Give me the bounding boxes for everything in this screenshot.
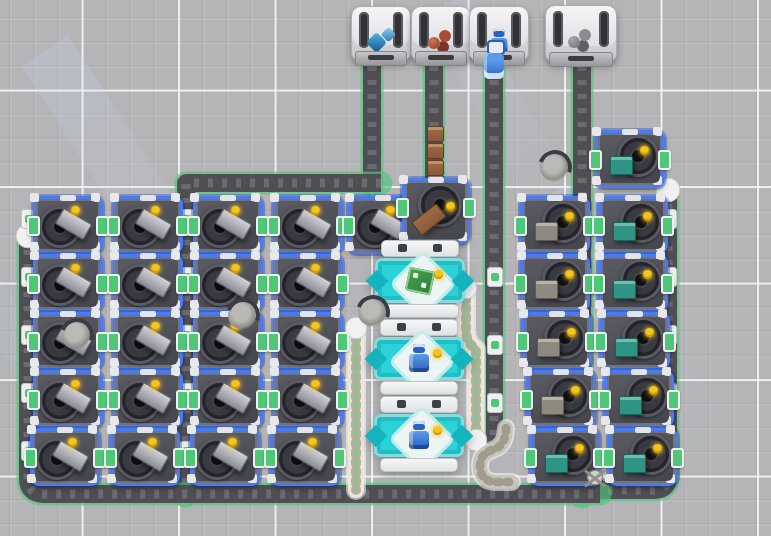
output-port-right (336, 274, 349, 294)
status-light (71, 380, 80, 389)
status-light (311, 322, 320, 331)
output-port-right (661, 274, 674, 294)
status-light (565, 212, 574, 221)
circuit-item-icon (405, 266, 435, 295)
resource-cube (545, 454, 568, 473)
output-port-left (342, 216, 355, 236)
output-port-left (516, 332, 529, 352)
output-port-right (336, 390, 349, 410)
extractor-teal[interactable] (598, 196, 668, 254)
input-slot (397, 323, 406, 331)
belt-item-wood[interactable] (427, 126, 444, 142)
output-port-left (264, 448, 277, 468)
output-port-left (267, 332, 280, 352)
robot-head (413, 421, 425, 430)
output-port-left (107, 216, 120, 236)
delivery-robot[interactable] (482, 40, 506, 82)
extractor-stone[interactable] (520, 254, 590, 312)
output-port-left (27, 216, 40, 236)
extractor-wood[interactable] (402, 178, 470, 244)
stone-item-icon (567, 28, 595, 50)
hopper-slot (599, 11, 609, 47)
assembler-chamber (374, 337, 464, 380)
status-light (571, 386, 580, 395)
hopper-slot (553, 11, 563, 47)
belt-item-wood[interactable] (427, 143, 444, 159)
delivery-hopper-crystal[interactable] (351, 6, 411, 62)
robot-head (413, 344, 425, 353)
assembler-robot[interactable] (374, 319, 464, 395)
status-light (231, 264, 240, 273)
port-indicator (491, 399, 499, 407)
input-slot (398, 244, 407, 252)
status-light (643, 212, 652, 221)
extractor-iron[interactable] (270, 428, 340, 486)
robot-wreck[interactable] (540, 152, 570, 182)
assembler-output-cap (381, 304, 459, 318)
extractor-teal[interactable] (598, 254, 668, 312)
extractor-teal[interactable] (595, 130, 665, 188)
output-port-left (107, 390, 120, 410)
output-port-left (589, 150, 602, 170)
assembler-chamber (375, 258, 465, 303)
junction-port[interactable] (487, 267, 503, 287)
status-light (151, 380, 160, 389)
delivery-hopper-copper[interactable] (411, 6, 471, 62)
output-port-left (187, 390, 200, 410)
resource-cube (613, 280, 636, 299)
resource-cube (610, 156, 633, 175)
output-port-left (524, 448, 537, 468)
status-light (148, 438, 157, 447)
status-light (311, 380, 320, 389)
status-light (653, 444, 662, 453)
extractor-stone[interactable] (522, 312, 592, 370)
status-light (433, 349, 442, 358)
hopper-slot (393, 12, 403, 48)
input-slot (433, 244, 442, 252)
extractor-iron[interactable] (113, 196, 183, 254)
extractor-iron[interactable] (113, 370, 183, 428)
status-light (308, 438, 317, 447)
output-port-left (27, 274, 40, 294)
output-port-left (27, 390, 40, 410)
extractor-iron[interactable] (113, 254, 183, 312)
hopper-base (415, 51, 467, 66)
output-port-left (514, 274, 527, 294)
assembler-robot[interactable] (374, 396, 464, 472)
status-light (311, 206, 320, 215)
output-port-left (267, 390, 280, 410)
extractor-iron[interactable] (273, 370, 343, 428)
output-port-right (463, 198, 476, 218)
output-port-left (184, 448, 197, 468)
status-light (231, 380, 240, 389)
output-port-left (267, 274, 280, 294)
extractor-iron[interactable] (33, 254, 103, 312)
output-port-left (107, 274, 120, 294)
delivery-hopper-stone[interactable] (545, 5, 617, 63)
status-light (575, 444, 584, 453)
output-port-right (671, 448, 684, 468)
robot-torso (409, 431, 429, 449)
extractor-iron[interactable] (190, 428, 260, 486)
input-slot (432, 400, 441, 408)
output-port-left (107, 332, 120, 352)
output-port-left (104, 448, 117, 468)
robot-torso (409, 354, 429, 372)
resource-cube (537, 338, 560, 357)
output-port-left (592, 216, 605, 236)
output-port-left (27, 332, 40, 352)
output-port-left (520, 390, 533, 410)
output-port-left (187, 332, 200, 352)
status-light (565, 270, 574, 279)
output-port-left (24, 448, 37, 468)
status-light (231, 206, 240, 215)
robot-item-icon (408, 421, 430, 451)
status-light (71, 264, 80, 273)
hopper-slot (511, 12, 521, 48)
hopper-base (355, 51, 407, 66)
output-port-left (592, 274, 605, 294)
output-port-left (396, 198, 409, 218)
junction-port[interactable] (487, 335, 503, 355)
status-light (640, 146, 649, 155)
status-light (433, 426, 442, 435)
extractor-iron[interactable] (110, 428, 180, 486)
status-light (567, 328, 576, 337)
extractor-iron[interactable] (273, 312, 343, 370)
status-light (151, 206, 160, 215)
status-light (71, 206, 80, 215)
extractor-iron[interactable] (113, 312, 183, 370)
robot-wreck[interactable] (62, 320, 92, 350)
copper-item-icon (427, 29, 455, 51)
factory-viewport (0, 0, 771, 536)
output-port-right (658, 150, 671, 170)
resource-cube (541, 396, 564, 415)
status-light (228, 438, 237, 447)
extractor-iron[interactable] (193, 196, 263, 254)
status-light (311, 264, 320, 273)
extractor-iron[interactable] (33, 370, 103, 428)
status-light (68, 438, 77, 447)
junction-port[interactable] (487, 393, 503, 413)
resource-cube (535, 222, 558, 241)
port-indicator (491, 273, 499, 281)
resource-cube (623, 454, 646, 473)
resource-cube (535, 280, 558, 299)
spider-robot[interactable] (578, 462, 612, 496)
extractor-teal[interactable] (608, 428, 678, 486)
status-light (151, 322, 160, 331)
extractor-iron[interactable] (273, 254, 343, 312)
status-light (434, 270, 443, 279)
hopper-base (549, 52, 613, 67)
status-light (386, 206, 395, 215)
robot-head (494, 29, 505, 37)
port-indicator (491, 341, 499, 349)
robot-item-icon (408, 344, 430, 374)
output-port-right (333, 448, 346, 468)
extractor-iron[interactable] (273, 196, 343, 254)
output-port-left (187, 216, 200, 236)
assembler-output-cap (380, 381, 458, 395)
resource-cube (615, 338, 638, 357)
output-port-right (661, 216, 674, 236)
output-port-right (667, 390, 680, 410)
robot-wreck[interactable] (358, 297, 388, 327)
input-slot (397, 400, 406, 408)
extractor-iron[interactable] (33, 196, 103, 254)
belt-item-wood[interactable] (427, 160, 444, 176)
output-port-left (514, 216, 527, 236)
status-light (446, 202, 455, 211)
status-light (645, 328, 654, 337)
output-port-left (594, 332, 607, 352)
resource-cube (619, 396, 642, 415)
output-port-left (267, 216, 280, 236)
robot-wreck[interactable] (228, 300, 258, 330)
extractor-stone[interactable] (526, 370, 596, 428)
output-port-right (336, 332, 349, 352)
status-light (151, 264, 160, 273)
input-slot (432, 323, 441, 331)
output-port-left (187, 274, 200, 294)
assembler-chamber (374, 414, 464, 457)
status-light (649, 386, 658, 395)
extractor-stone[interactable] (520, 196, 590, 254)
resource-cube (613, 222, 636, 241)
extractor-iron[interactable] (193, 370, 263, 428)
assembler-output-cap (380, 458, 458, 472)
extractor-teal[interactable] (604, 370, 674, 428)
status-light (643, 270, 652, 279)
output-port-left (598, 390, 611, 410)
extractor-iron[interactable] (30, 428, 100, 486)
extractor-teal[interactable] (600, 312, 670, 370)
output-port-right (663, 332, 676, 352)
